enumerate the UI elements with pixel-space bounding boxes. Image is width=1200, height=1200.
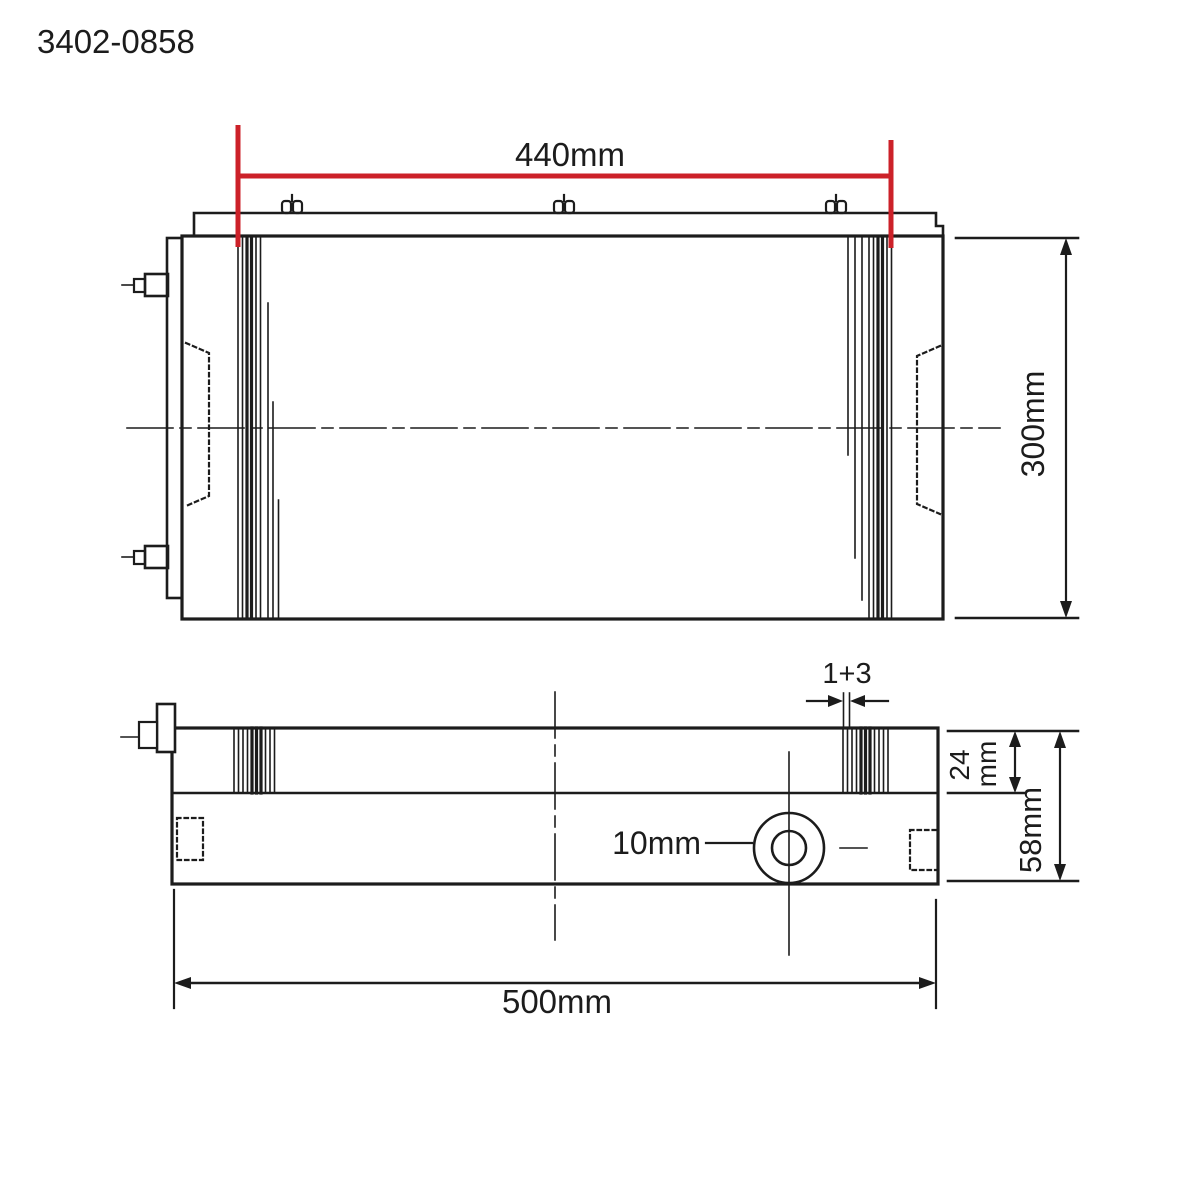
- arrowhead-up: [1009, 731, 1021, 747]
- dimension-pole-pitch: 1+3: [807, 658, 888, 727]
- hidden-contour-right: [917, 346, 940, 514]
- arrowhead-right: [828, 695, 843, 707]
- arrowhead-right: [919, 977, 936, 989]
- hidden-contour-left: [186, 343, 209, 506]
- arrowhead-up: [1060, 238, 1072, 255]
- dimension-300mm: 300mm: [956, 238, 1078, 618]
- arrowhead-left: [174, 977, 191, 989]
- arrowhead-left: [850, 695, 865, 707]
- top-rail: [194, 213, 943, 236]
- arrowhead-up: [1054, 731, 1066, 748]
- dim-58mm-label: 58mm: [1013, 787, 1048, 873]
- pole-hatch-band-left: [234, 728, 275, 793]
- dim-500mm-label: 500mm: [502, 983, 612, 1020]
- hidden-slot-left: [177, 818, 203, 860]
- technical-drawing-canvas: 3402-0858: [0, 0, 1200, 1200]
- dim-440mm-label: 440mm: [515, 136, 625, 173]
- clamp-bolt-lower: [122, 546, 168, 568]
- clamp-bolt-side: [121, 704, 175, 752]
- arrowhead-down: [1060, 601, 1072, 618]
- mounting-lug-left: [282, 195, 302, 213]
- dim-24-label-unit: mm: [971, 741, 1002, 788]
- mounting-lug-right: [826, 195, 846, 213]
- top-view: 300mm 440mm: [122, 125, 1078, 619]
- hidden-slot-right: [910, 830, 938, 870]
- dim-10mm-label: 10mm: [612, 825, 701, 861]
- dimension-10mm: 10mm: [612, 825, 752, 861]
- dim-300mm-label: 300mm: [1015, 371, 1051, 478]
- mounting-hole: [754, 752, 867, 955]
- dimension-440mm: 440mm: [236, 125, 894, 248]
- side-view: 10mm 1+3 24 mm 5: [121, 658, 1078, 1020]
- mounting-lug-middle: [554, 195, 574, 213]
- clamp-bolt-upper: [122, 274, 168, 296]
- part-number: 3402-0858: [37, 23, 195, 60]
- dim-1-3-label: 1+3: [822, 658, 871, 690]
- arrowhead-down: [1054, 864, 1066, 881]
- pole-hatch-band-right: [843, 728, 888, 793]
